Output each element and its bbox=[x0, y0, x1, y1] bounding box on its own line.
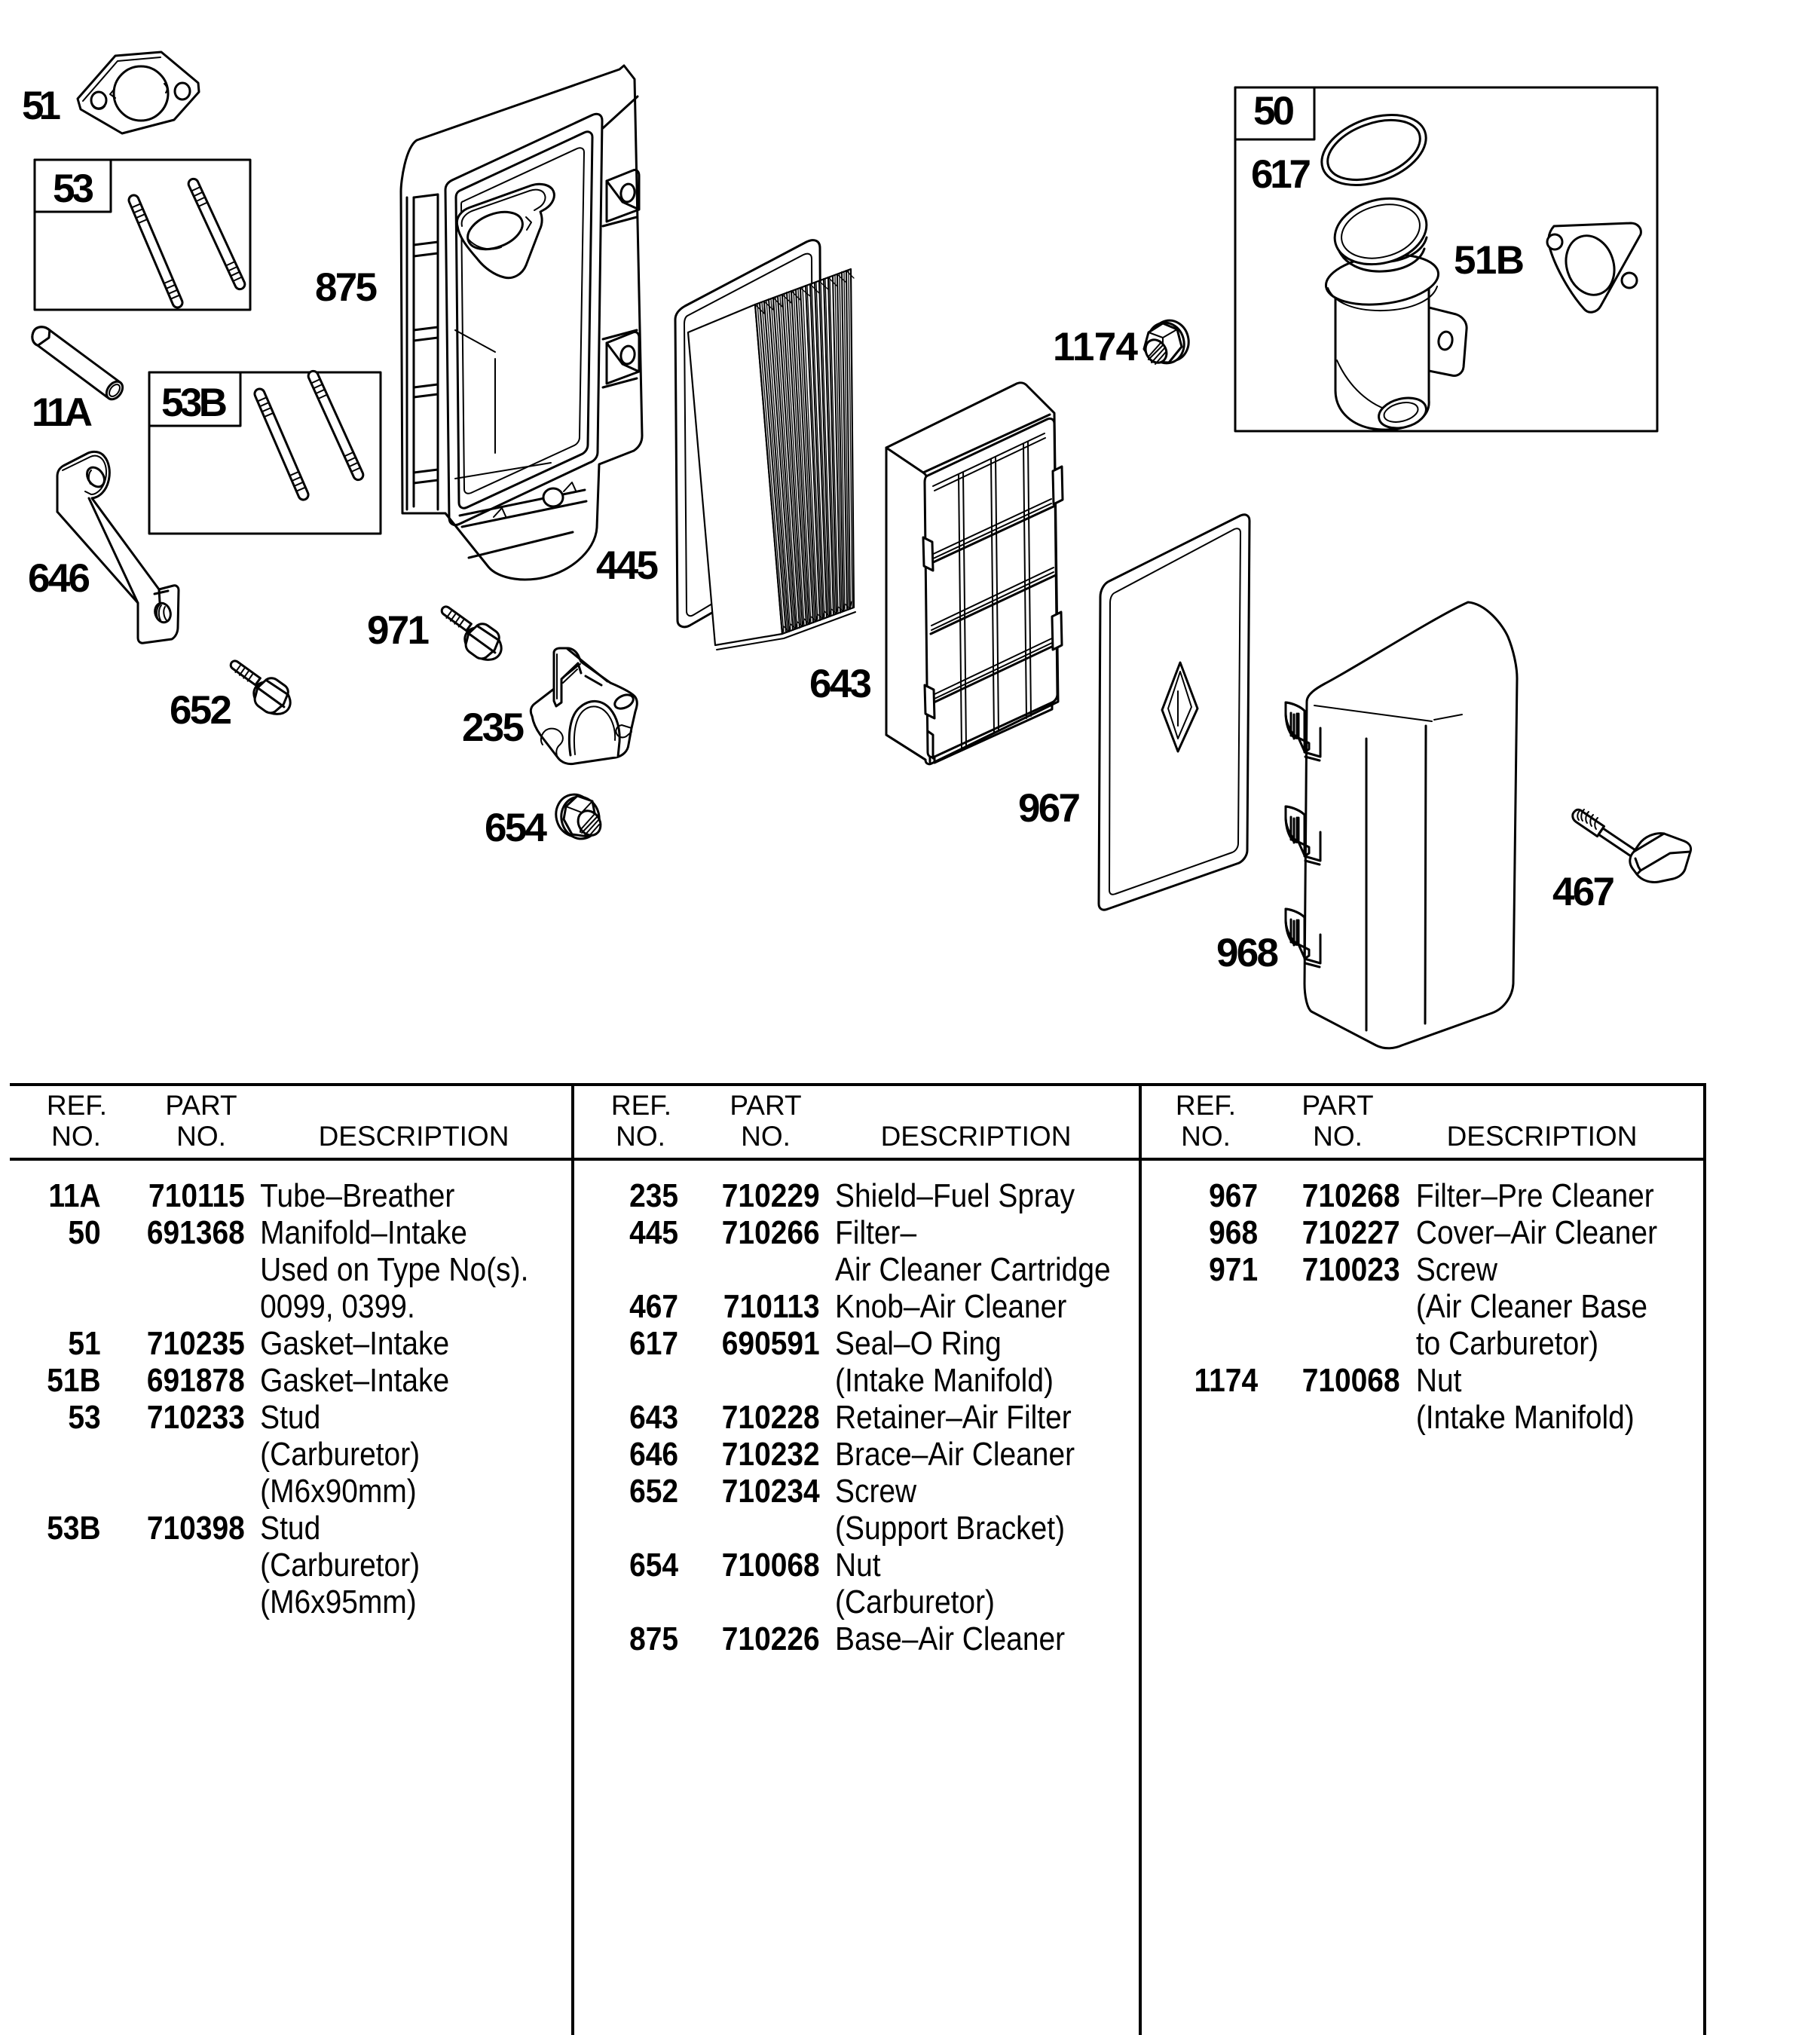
svg-text:971: 971 bbox=[367, 608, 430, 653]
svg-text:710023: 710023 bbox=[1302, 1250, 1400, 1288]
svg-text:PART: PART bbox=[730, 1090, 801, 1121]
svg-text:Gasket–Intake: Gasket–Intake bbox=[260, 1361, 449, 1399]
svg-text:967: 967 bbox=[1018, 786, 1081, 831]
svg-text:50: 50 bbox=[68, 1213, 100, 1251]
svg-text:NO.: NO. bbox=[616, 1121, 665, 1152]
svg-text:REF.: REF. bbox=[47, 1090, 107, 1121]
svg-text:Filter–: Filter– bbox=[835, 1213, 917, 1251]
svg-text:617: 617 bbox=[629, 1324, 678, 1362]
svg-text:235: 235 bbox=[462, 705, 525, 750]
svg-text:968: 968 bbox=[1216, 931, 1279, 975]
svg-text:652: 652 bbox=[170, 688, 232, 733]
svg-text:710115: 710115 bbox=[148, 1177, 245, 1214]
svg-text:NO.: NO. bbox=[176, 1121, 226, 1152]
svg-text:646: 646 bbox=[629, 1435, 678, 1473]
svg-text:51: 51 bbox=[22, 84, 61, 128]
svg-text:53: 53 bbox=[53, 167, 94, 211]
svg-text:DESCRIPTION: DESCRIPTION bbox=[1447, 1121, 1638, 1152]
svg-text:(Carburetor): (Carburetor) bbox=[835, 1583, 995, 1620]
svg-text:445: 445 bbox=[629, 1213, 678, 1251]
svg-text:51B: 51B bbox=[47, 1361, 100, 1399]
svg-text:NO.: NO. bbox=[1181, 1121, 1231, 1152]
svg-text:DESCRIPTION: DESCRIPTION bbox=[881, 1121, 1072, 1152]
svg-text:710235: 710235 bbox=[147, 1324, 245, 1362]
svg-text:Tube–Breather: Tube–Breather bbox=[260, 1177, 454, 1214]
svg-text:1174: 1174 bbox=[1194, 1361, 1258, 1399]
svg-text:971: 971 bbox=[1209, 1250, 1258, 1288]
svg-text:NO.: NO. bbox=[51, 1121, 101, 1152]
svg-text:710266: 710266 bbox=[722, 1213, 820, 1251]
svg-text:445: 445 bbox=[596, 543, 659, 588]
svg-text:Base–Air Cleaner: Base–Air Cleaner bbox=[835, 1620, 1065, 1657]
svg-text:11A: 11A bbox=[48, 1177, 100, 1214]
svg-text:51: 51 bbox=[68, 1324, 100, 1362]
svg-text:968: 968 bbox=[1209, 1213, 1258, 1251]
svg-text:Retainer–Air Filter: Retainer–Air Filter bbox=[835, 1398, 1072, 1436]
svg-text:710068: 710068 bbox=[722, 1546, 820, 1584]
svg-text:(Intake Manifold): (Intake Manifold) bbox=[835, 1361, 1054, 1399]
svg-text:PART: PART bbox=[1302, 1090, 1373, 1121]
svg-text:REF.: REF. bbox=[1176, 1090, 1236, 1121]
svg-text:11A: 11A bbox=[32, 390, 93, 435]
svg-text:691368: 691368 bbox=[147, 1213, 245, 1251]
svg-text:710398: 710398 bbox=[147, 1509, 245, 1547]
svg-text:DESCRIPTION: DESCRIPTION bbox=[319, 1121, 509, 1152]
svg-text:51B: 51B bbox=[1454, 238, 1525, 283]
svg-text:(Support Bracket): (Support Bracket) bbox=[835, 1509, 1065, 1547]
svg-text:654: 654 bbox=[485, 806, 548, 850]
svg-text:REF.: REF. bbox=[611, 1090, 671, 1121]
svg-text:NO.: NO. bbox=[1313, 1121, 1363, 1152]
svg-text:Cover–Air Cleaner: Cover–Air Cleaner bbox=[1416, 1213, 1657, 1251]
svg-text:691878: 691878 bbox=[147, 1361, 245, 1399]
svg-text:710226: 710226 bbox=[722, 1620, 820, 1657]
svg-text:Brace–Air Cleaner: Brace–Air Cleaner bbox=[835, 1435, 1075, 1473]
svg-text:Shield–Fuel Spray: Shield–Fuel Spray bbox=[835, 1177, 1075, 1214]
svg-text:(Carburetor): (Carburetor) bbox=[260, 1435, 420, 1473]
svg-text:53B: 53B bbox=[47, 1509, 100, 1547]
svg-text:467: 467 bbox=[1552, 870, 1615, 914]
svg-text:646: 646 bbox=[28, 556, 90, 601]
svg-text:Nut: Nut bbox=[1416, 1361, 1462, 1399]
svg-text:Used on Type No(s).: Used on Type No(s). bbox=[260, 1250, 528, 1288]
svg-text:235: 235 bbox=[629, 1177, 678, 1214]
svg-text:710234: 710234 bbox=[722, 1472, 820, 1510]
svg-text:467: 467 bbox=[629, 1287, 678, 1325]
svg-text:(Intake Manifold): (Intake Manifold) bbox=[1416, 1398, 1635, 1436]
svg-text:50: 50 bbox=[1253, 89, 1295, 133]
svg-text:710227: 710227 bbox=[1302, 1213, 1400, 1251]
svg-text:Nut: Nut bbox=[835, 1546, 881, 1584]
svg-text:(Carburetor): (Carburetor) bbox=[260, 1546, 420, 1584]
svg-text:875: 875 bbox=[315, 265, 378, 310]
svg-text:to Carburetor): to Carburetor) bbox=[1416, 1324, 1598, 1362]
svg-text:Knob–Air Cleaner: Knob–Air Cleaner bbox=[835, 1287, 1066, 1325]
svg-text:690591: 690591 bbox=[722, 1324, 820, 1362]
svg-text:Air Cleaner Cartridge: Air Cleaner Cartridge bbox=[835, 1250, 1111, 1288]
svg-text:710113: 710113 bbox=[723, 1287, 820, 1325]
svg-text:53: 53 bbox=[68, 1398, 100, 1436]
svg-text:710068: 710068 bbox=[1302, 1361, 1400, 1399]
svg-text:652: 652 bbox=[629, 1472, 678, 1510]
svg-text:NO.: NO. bbox=[741, 1121, 791, 1152]
svg-text:1174: 1174 bbox=[1053, 325, 1139, 369]
svg-text:Filter–Pre Cleaner: Filter–Pre Cleaner bbox=[1416, 1177, 1654, 1214]
svg-text:Manifold–Intake: Manifold–Intake bbox=[260, 1213, 467, 1251]
svg-text:967: 967 bbox=[1209, 1177, 1258, 1214]
svg-text:710232: 710232 bbox=[722, 1435, 820, 1473]
svg-text:0099, 0399.: 0099, 0399. bbox=[260, 1287, 415, 1325]
svg-text:643: 643 bbox=[629, 1398, 678, 1436]
svg-text:643: 643 bbox=[809, 662, 872, 706]
svg-text:710233: 710233 bbox=[147, 1398, 245, 1436]
svg-text:Stud: Stud bbox=[260, 1509, 320, 1547]
svg-text:Screw: Screw bbox=[1416, 1250, 1498, 1288]
svg-text:710268: 710268 bbox=[1302, 1177, 1400, 1214]
svg-text:617: 617 bbox=[1251, 152, 1311, 197]
svg-text:Seal–O Ring: Seal–O Ring bbox=[835, 1324, 1002, 1362]
svg-text:710228: 710228 bbox=[722, 1398, 820, 1436]
svg-text:(M6x90mm): (M6x90mm) bbox=[260, 1472, 417, 1510]
svg-text:Screw: Screw bbox=[835, 1472, 917, 1510]
svg-text:Stud: Stud bbox=[260, 1398, 320, 1436]
svg-text:53B: 53B bbox=[161, 381, 228, 425]
svg-text:(Air Cleaner Base: (Air Cleaner Base bbox=[1416, 1287, 1647, 1325]
svg-text:PART: PART bbox=[165, 1090, 237, 1121]
svg-text:(M6x95mm): (M6x95mm) bbox=[260, 1583, 417, 1620]
svg-text:710229: 710229 bbox=[722, 1177, 820, 1214]
svg-text:875: 875 bbox=[629, 1620, 678, 1657]
svg-text:Gasket–Intake: Gasket–Intake bbox=[260, 1324, 449, 1362]
svg-text:654: 654 bbox=[629, 1546, 678, 1584]
